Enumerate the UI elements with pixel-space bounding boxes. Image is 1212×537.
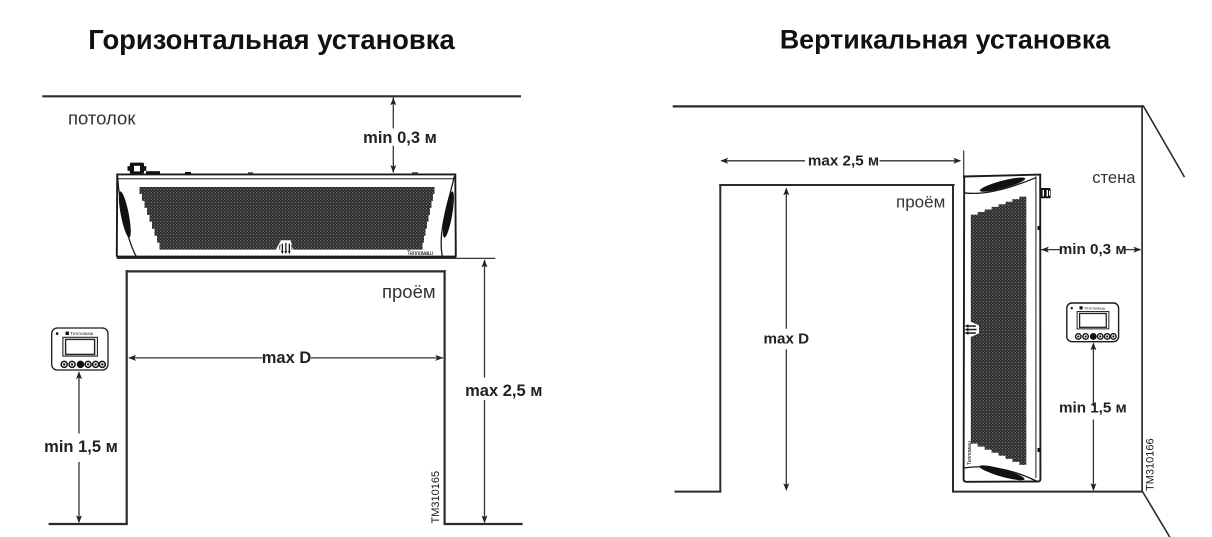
svg-text:потолок: потолок xyxy=(68,107,136,128)
svg-text:Тепломаш: Тепломаш xyxy=(70,331,93,336)
svg-text:max 2,5 м: max 2,5 м xyxy=(808,152,879,169)
svg-text:TM310165: TM310165 xyxy=(430,471,442,524)
svg-text:min 0,3 м: min 0,3 м xyxy=(363,129,437,147)
svg-text:Тепломаш: Тепломаш xyxy=(407,250,433,257)
svg-text:min 1,5 м: min 1,5 м xyxy=(44,438,118,456)
svg-text:max D: max D xyxy=(764,331,810,348)
svg-text:min 1,5 м: min 1,5 м xyxy=(1059,400,1127,417)
svg-text:Тепломаш: Тепломаш xyxy=(967,440,973,465)
svg-text:Вертикальная установка: Вертикальная установка xyxy=(780,25,1111,55)
svg-text:min 0,3 м: min 0,3 м xyxy=(1059,241,1127,258)
svg-text:Тепломаш: Тепломаш xyxy=(1084,305,1105,310)
svg-text:стена: стена xyxy=(1092,169,1136,187)
svg-text:TM310166: TM310166 xyxy=(1145,438,1157,491)
svg-text:max 2,5 м: max 2,5 м xyxy=(465,382,542,400)
svg-text:Горизонтальная установка: Горизонтальная установка xyxy=(88,24,455,55)
svg-text:проём: проём xyxy=(382,281,436,302)
svg-text:max D: max D xyxy=(262,349,312,367)
svg-text:проём: проём xyxy=(896,192,945,211)
